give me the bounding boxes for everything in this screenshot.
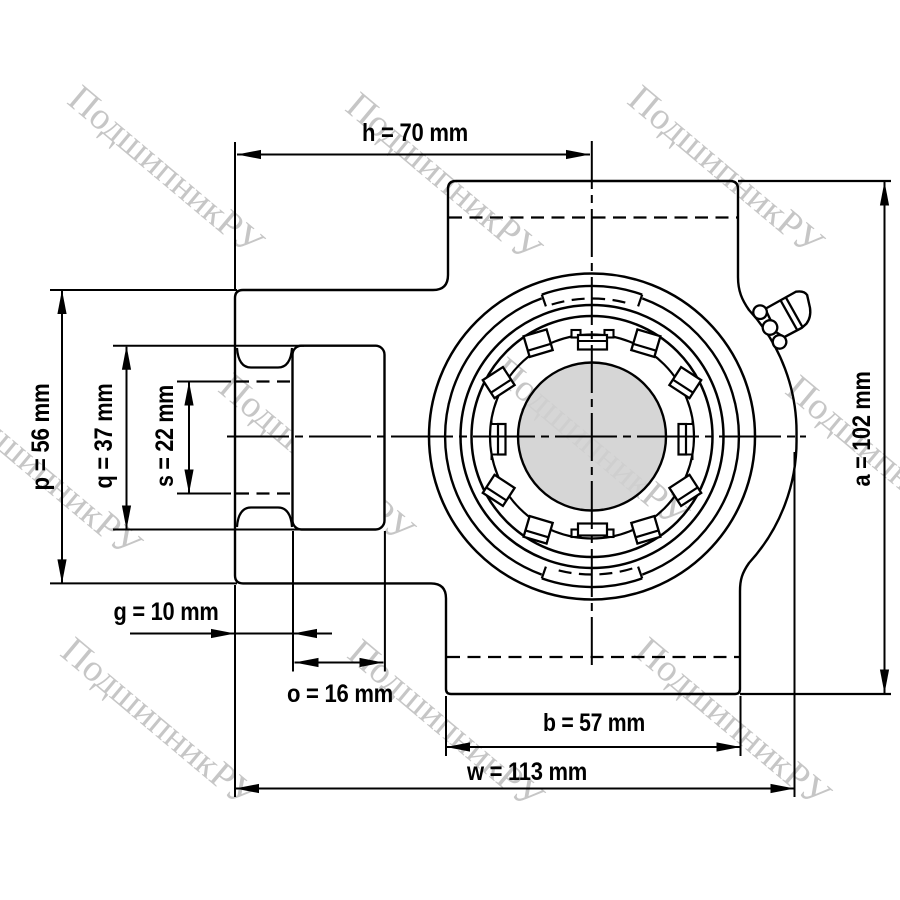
- svg-text:ПодшипникРУ: ПодшипникРУ: [338, 84, 550, 271]
- svg-text:g = 10 mm: g = 10 mm: [114, 598, 219, 626]
- svg-text:a = 102 mm: a = 102 mm: [848, 372, 876, 487]
- svg-text:s = 22 mm: s = 22 mm: [151, 385, 179, 487]
- svg-text:b = 57 mm: b = 57 mm: [543, 709, 645, 737]
- svg-text:h = 70 mm: h = 70 mm: [362, 119, 468, 147]
- svg-text:o = 16 mm: o = 16 mm: [287, 680, 393, 708]
- svg-text:ПодшипникРУ: ПодшипникРУ: [53, 629, 265, 816]
- svg-text:ПодшипникРУ: ПодшипникРУ: [60, 77, 272, 264]
- svg-text:p = 56 mm: p = 56 mm: [27, 384, 55, 491]
- svg-text:w = 113 mm: w = 113 mm: [466, 758, 587, 786]
- svg-text:ПодшипникРУ: ПодшипникРУ: [620, 77, 832, 264]
- svg-text:q = 37 mm: q = 37 mm: [90, 384, 118, 489]
